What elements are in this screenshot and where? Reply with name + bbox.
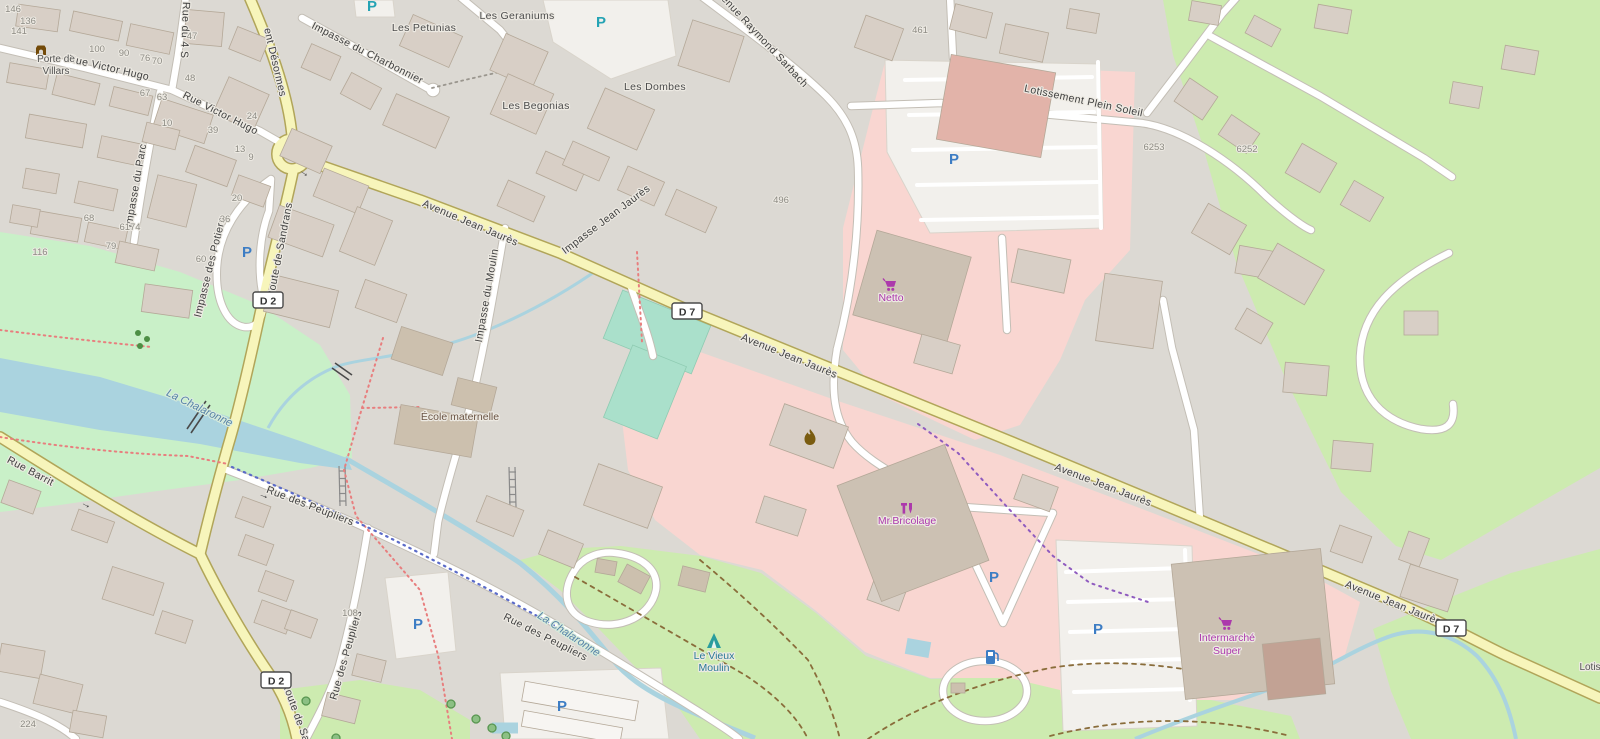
tree-icon [502,732,510,739]
tree-icon [302,697,310,705]
tree-icon [137,343,143,349]
house-number: 146 [5,4,21,15]
shield-ref: D 2 [268,676,285,688]
parking-icon: P [413,616,423,633]
building [1283,362,1329,396]
house-number: 68 [84,213,95,224]
house-number: 9 [248,152,253,163]
area-label: Les Begonias [502,100,569,112]
cart-wheel [1223,627,1226,630]
building [936,54,1055,157]
parking-icon: P [367,0,377,15]
pump-window [988,652,993,656]
shield-ref: D 7 [679,307,696,319]
house-number: 60 [196,254,207,265]
poi-label: Lotis [1579,662,1600,673]
house-number: 70 [152,56,163,67]
house-number: 6253 [1143,142,1164,153]
house-number: 116 [32,247,47,258]
house-number: 76 [140,53,151,64]
house-number: 63 [157,92,168,103]
poi-label: Villars [42,66,69,77]
house-number: 67 [140,88,151,99]
house-number: 141 [11,26,27,37]
route-shield: D 7 [1436,620,1466,636]
tree-icon [332,734,340,739]
parking-icon: P [557,698,567,715]
tree-icon [144,336,150,342]
shield-ref: D 2 [260,296,277,308]
area-label: Les Dombes [624,81,686,93]
building [595,558,617,575]
house-number: 6252 [1236,144,1257,155]
house-number: 36 [220,214,231,225]
shop-label: Super [1213,645,1242,657]
house-number: 47 [187,31,198,42]
house-number: 461 [912,25,928,36]
parking-icon: P [989,569,999,586]
house-number: 100 [89,44,105,55]
house-number: 79 [106,241,117,252]
building [1449,82,1482,109]
house-number: 39 [208,125,219,136]
building [1404,311,1438,335]
parking-icon: P [596,14,606,31]
tourism-label: Le Vieux [694,650,735,662]
tree-icon [488,724,496,732]
house-number: 24 [247,111,258,122]
area-label: Les Geraniums [479,10,554,22]
poi-label: Porte de [37,54,75,65]
poi-label: École maternelle [421,410,499,423]
route-shield: D 7 [672,303,702,319]
house-number: 48 [185,73,196,84]
house-number: 496 [773,195,789,206]
building [1331,440,1373,471]
house-number: 13 [235,144,246,155]
cart-wheel [891,288,894,291]
house-number: 108 [342,608,358,619]
shield-ref: D 7 [1443,624,1460,636]
building [1262,638,1326,700]
building [1096,273,1163,348]
tourism-label: Moulin [699,662,730,674]
shop-label: Intermarché [1199,632,1255,644]
house-number: 10 [162,118,173,129]
route-shield: D 2 [253,292,283,308]
parking-icon: P [949,151,959,168]
house-number: 6174 [119,222,140,233]
shop-label: Netto [878,292,903,304]
house-number: 90 [119,48,130,59]
tree-icon [447,700,455,708]
cart-wheel [1227,627,1230,630]
route-shield: D 2 [261,672,291,688]
tree-icon [472,715,480,723]
cart-wheel [887,288,890,291]
map-svg: PPPPPPPP→→→Rue Victor HugoRue Victor Hug… [0,0,1600,739]
house-number: 20 [232,193,243,204]
house-number: 224 [20,719,36,730]
tree-icon [135,330,141,336]
parking-icon: P [1093,621,1103,638]
building [951,683,965,693]
map-canvas[interactable]: PPPPPPPP→→→Rue Victor HugoRue Victor Hug… [0,0,1600,739]
parking-icon: P [242,244,252,261]
area-label: Les Petunias [392,22,456,34]
shop-label: Mr.Bricolage [878,515,937,527]
